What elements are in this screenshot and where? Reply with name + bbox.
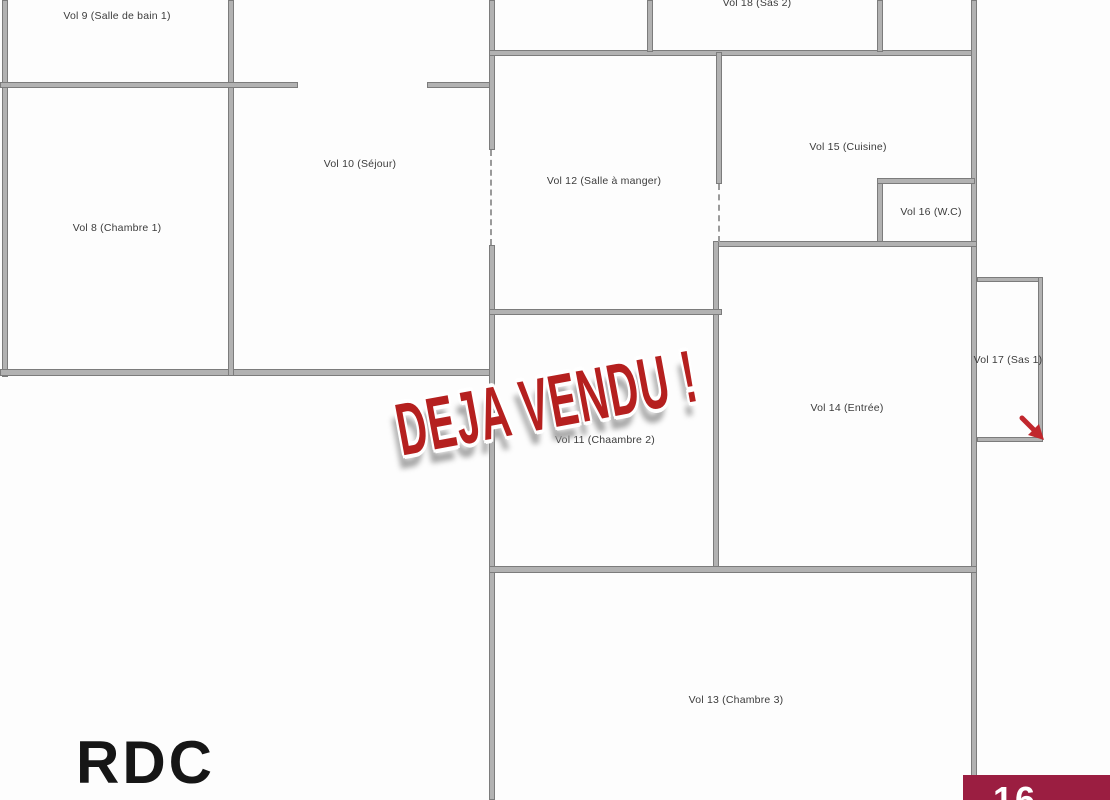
wall-sejour-top-stub: [427, 82, 495, 88]
wall-left-chambre23: [489, 245, 495, 800]
agency-logo: 16: [963, 775, 1110, 800]
wall-sam-cuisine-top: [489, 50, 977, 56]
agency-logo-text: 16: [993, 782, 1037, 800]
sold-stamp: DEJA VENDU !: [389, 333, 704, 472]
floor-title: RDC: [76, 733, 215, 793]
room-label-vol17: Vol 17 (Sas 1): [974, 354, 1043, 366]
wall-chambre2-top: [489, 309, 722, 315]
wall-sam-cuisine-upper: [716, 52, 722, 184]
wall-wc-top: [877, 178, 975, 184]
room-label-vol14: Vol 14 (Entrée): [810, 402, 883, 414]
room-label-vol15: Vol 15 (Cuisine): [809, 141, 886, 153]
dashed-opening-sam-cuisine: [718, 184, 720, 242]
wall-right-outer: [971, 0, 977, 800]
wall-entree-left: [713, 241, 719, 572]
room-label-vol12: Vol 12 (Salle à manger): [547, 175, 661, 187]
wall-chambre3-top: [489, 566, 977, 573]
dashed-opening-sejour-sam: [490, 150, 492, 245]
room-label-vol13: Vol 13 (Chambre 3): [689, 694, 784, 706]
wall-wc-left: [877, 178, 883, 247]
wall-leftblock-bottom: [0, 369, 495, 376]
room-label-vol9: Vol 9 (Salle de bain 1): [63, 10, 170, 22]
wall-left-outer: [2, 0, 8, 377]
wall-bath-bottom: [0, 82, 298, 88]
wall-chambre1-sejour: [228, 0, 234, 376]
wall-sas2-left: [647, 0, 653, 52]
floor-plan-canvas: Vol 9 (Salle de bain 1) Vol 8 (Chambre 1…: [0, 0, 1110, 800]
room-label-vol16: Vol 16 (W.C): [900, 206, 961, 218]
wall-sas1-top: [977, 277, 1043, 282]
wall-sejour-sam-upper: [489, 0, 495, 150]
sold-stamp-text: DEJA VENDU !: [389, 334, 703, 471]
room-label-vol18: Vol 18 (Sas 2): [723, 0, 792, 9]
room-label-vol10: Vol 10 (Séjour): [324, 158, 396, 170]
room-label-vol8: Vol 8 (Chambre 1): [73, 222, 162, 234]
wall-sas2-right: [877, 0, 883, 52]
entrance-arrow-icon: [1019, 415, 1049, 445]
wall-entree-top: [713, 241, 977, 247]
